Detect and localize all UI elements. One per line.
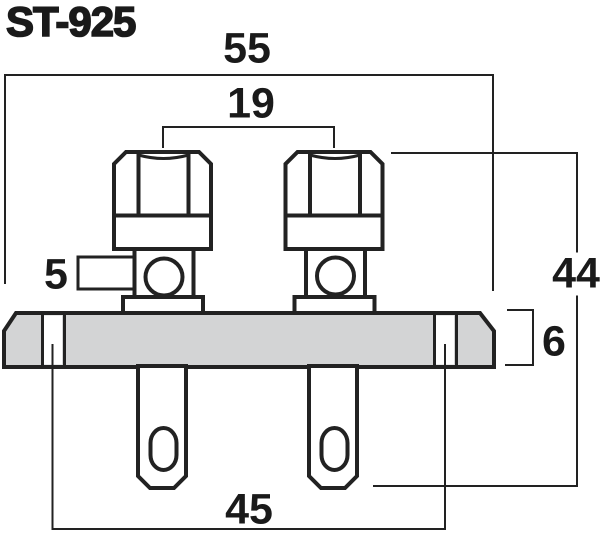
dim-label-overall-height: 44: [549, 253, 600, 296]
solder-lug-left: [138, 366, 186, 488]
binding-post-left-knob: [114, 152, 211, 249]
binding-post-right-base-flange: [295, 297, 375, 313]
dim-label-tab: 5: [44, 254, 68, 297]
binding-post-left-base-flange: [123, 297, 203, 313]
mounting-plate: [4, 313, 494, 367]
dim-label-hole-spacing: 45: [225, 489, 273, 532]
dim-label-overall-width: 55: [223, 28, 271, 71]
solder-lug-left-hole: [151, 428, 177, 470]
dim-6-bracket: [506, 310, 533, 365]
solder-lug-right: [309, 366, 357, 488]
technical-drawing: ST-925 55 19 5 44 6 45: [0, 0, 600, 533]
dim-19-bracket: [163, 127, 334, 147]
binding-post-right: [286, 152, 383, 313]
drawing-title: ST-925: [6, 1, 135, 43]
binding-post-left: [78, 152, 211, 313]
binding-post-left-wire-hole: [146, 259, 183, 296]
binding-post-left-side-tab: [78, 257, 135, 289]
dim-label-plate-thickness: 6: [542, 321, 566, 364]
dim-label-post-spacing: 19: [227, 83, 275, 126]
drawing-canvas: [0, 0, 600, 533]
binding-post-right-wire-hole: [317, 258, 354, 295]
solder-lug-right-hole: [322, 428, 348, 470]
binding-post-right-knob: [286, 152, 383, 249]
